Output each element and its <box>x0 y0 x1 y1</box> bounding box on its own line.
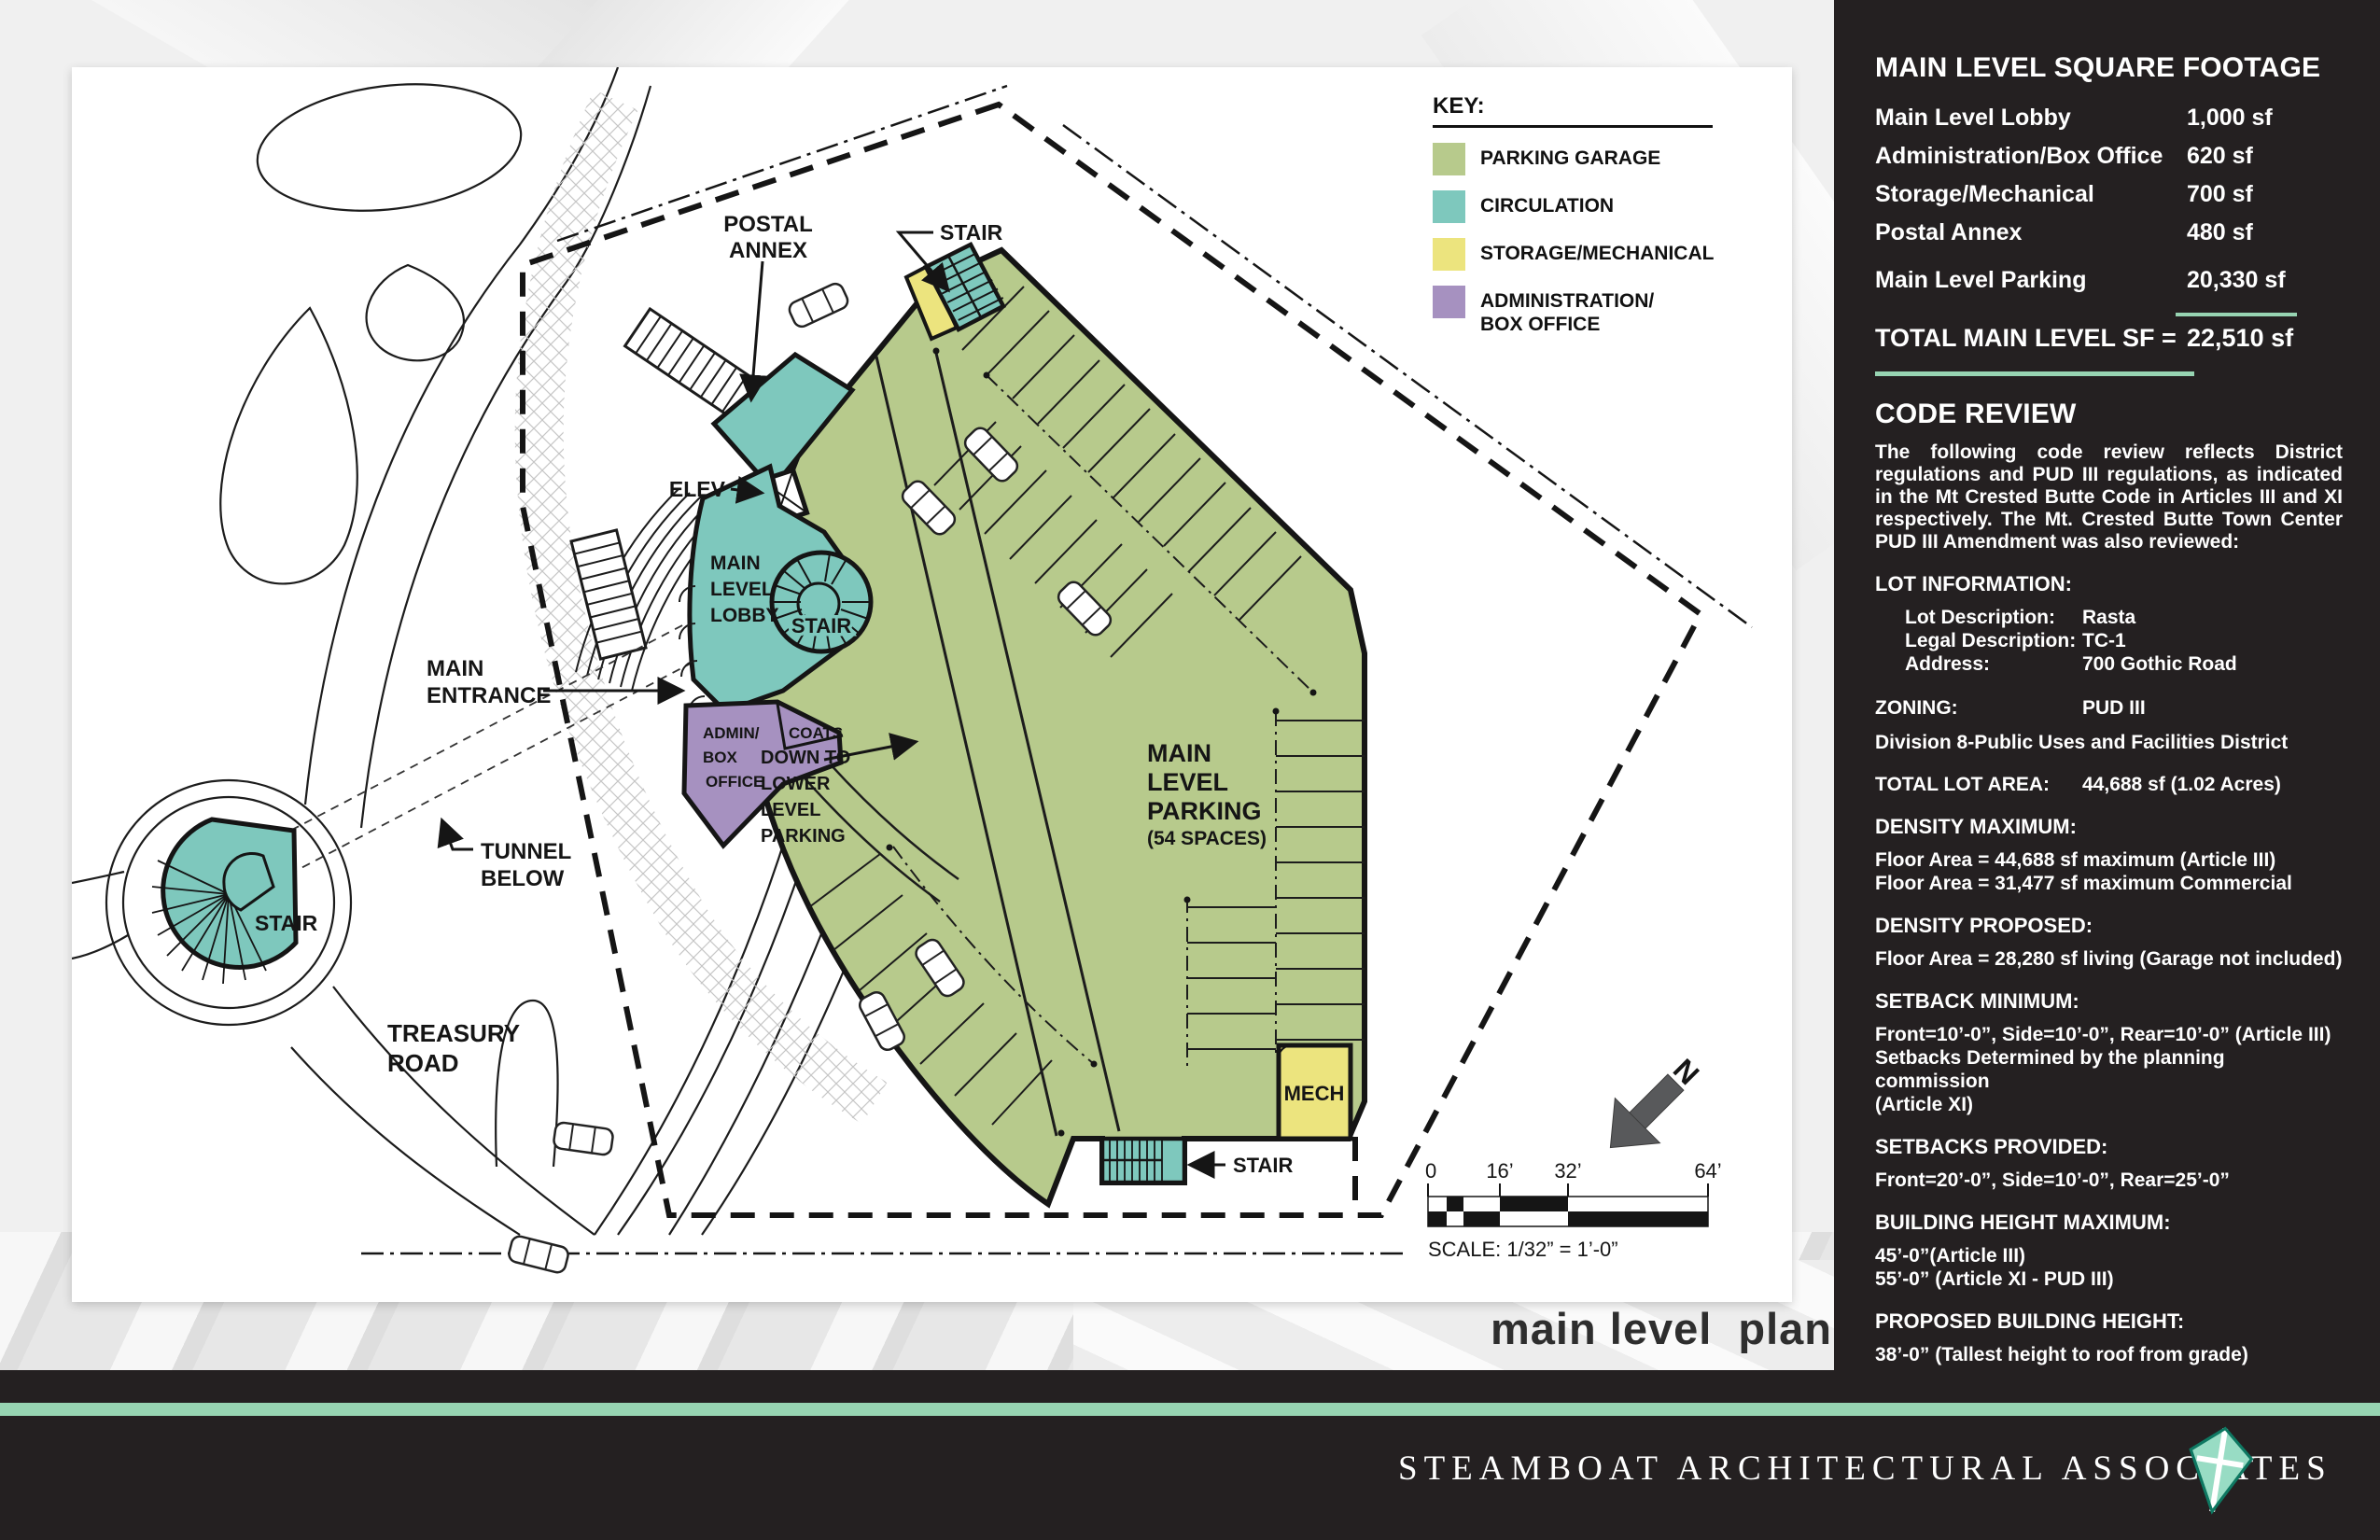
key-item-label: PARKING GARAGE <box>1480 143 1660 170</box>
section-line: 45’-0”(Article III) <box>1875 1244 2343 1267</box>
section-line: Front=20’-0”, Side=10’-0”, Rear=25’-0” <box>1875 1169 2343 1192</box>
circulation-swatch <box>1433 190 1465 223</box>
label-down-to: PARKING <box>761 826 846 847</box>
label-elev: ELEV <box>669 477 726 501</box>
scale-tick: 0 <box>1425 1159 1436 1183</box>
label-main-parking: MAIN <box>1147 739 1211 767</box>
label-main-entrance: MAIN <box>427 656 483 681</box>
sqft-total-row: TOTAL MAIN LEVEL SF = 22,510 sf <box>1875 324 2343 353</box>
label-admin: OFFICE <box>706 773 763 791</box>
section-heading: PROPOSED BUILDING HEIGHT: <box>1875 1309 2343 1334</box>
sqft-row: Postal Annex 480 sf <box>1875 214 2343 252</box>
logo-diamond-icon <box>2182 1424 2255 1518</box>
label-postal-annex: ANNEX <box>729 238 807 263</box>
lot-area-row: TOTAL LOT AREA: 44,688 sf (1.02 Acres) <box>1875 773 2343 796</box>
admin-swatch <box>1433 286 1465 318</box>
lot-info-row: Lot Description: Rasta <box>1875 606 2343 629</box>
label-stair-site: STAIR <box>255 911 318 935</box>
label-lobby: LEVEL <box>710 579 774 600</box>
zoning-note: Division 8-Public Uses and Facilities Di… <box>1875 731 2343 754</box>
key-title: KEY: <box>1433 93 1713 128</box>
label-main-parking: PARKING <box>1147 797 1262 825</box>
scale-tick: 32’ <box>1554 1159 1581 1183</box>
lot-info-row: Address: 700 Gothic Road <box>1875 652 2343 676</box>
label-mech: MECH <box>1284 1082 1345 1105</box>
plan-sheet: POSTAL ANNEX STAIR ELEV MAIN LEVEL LOBBY… <box>72 67 1792 1302</box>
code-review-title: CODE REVIEW <box>1875 399 2343 430</box>
label-tunnel-below: BELOW <box>481 866 565 891</box>
sqft-row: Main Level Parking 20,330 sf <box>1875 261 2343 300</box>
section-line: (Article XI) <box>1875 1093 2343 1116</box>
site-stair <box>152 819 296 984</box>
label-main-parking: LEVEL <box>1147 768 1228 796</box>
plan-caption: main level plan <box>1491 1303 1832 1354</box>
label-stair-bottom: STAIR <box>1233 1154 1293 1177</box>
label-postal-annex: POSTAL <box>723 212 813 237</box>
key-item-label: STORAGE/MECHANICAL <box>1480 238 1714 265</box>
key-item-label: ADMINISTRATION/ BOX OFFICE <box>1480 286 1654 336</box>
scale-label: SCALE: 1/32” = 1’-0” <box>1428 1238 1618 1261</box>
section-heading: DENSITY MAXIMUM: <box>1875 815 2343 839</box>
label-stair-spiral: STAIR <box>791 614 851 637</box>
north-arrow-icon: N <box>1588 1038 1720 1170</box>
scale-tick: 16’ <box>1486 1159 1513 1183</box>
section-heading: DENSITY PROPOSED: <box>1875 914 2343 938</box>
section-line: 55’-0” (Article XI - PUD III) <box>1875 1267 2343 1291</box>
car-icon <box>508 1235 570 1274</box>
label-treasury-road: ROAD <box>387 1049 459 1077</box>
section-heading: SETBACK MINIMUM: <box>1875 989 2343 1014</box>
key-legend: KEY: PARKING GARAGE CIRCULATION STORAGE/… <box>1433 93 1741 336</box>
section-line: Front=10’-0”, Side=10’-0”, Rear=10’-0” (… <box>1875 1023 2343 1046</box>
info-sidebar: MAIN LEVEL SQUARE FOOTAGE Main Level Lob… <box>1834 0 2380 1540</box>
key-item-label: CIRCULATION <box>1480 190 1614 217</box>
label-treasury-road: TREASURY <box>387 1019 520 1047</box>
section-line: Floor Area = 28,280 sf living (Garage no… <box>1875 947 2343 971</box>
scale-bar: 0 16’ 32’ 64’ SCALE: 1/32” = 1’-0” <box>1425 1159 1722 1261</box>
label-coats: COATS <box>789 724 843 742</box>
key-item-circulation: CIRCULATION <box>1433 190 1741 223</box>
label-down-to: LOWER <box>761 774 831 794</box>
zoning-row: ZONING: PUD III <box>1875 696 2343 720</box>
label-down-to: DOWN TO <box>761 748 850 768</box>
key-item-parking: PARKING GARAGE <box>1433 143 1741 175</box>
presentation-board: POSTAL ANNEX STAIR ELEV MAIN LEVEL LOBBY… <box>0 0 2380 1540</box>
code-review-intro: The following code review reflects Distr… <box>1875 441 2343 553</box>
key-item-admin: ADMINISTRATION/ BOX OFFICE <box>1433 286 1741 336</box>
mint-separator <box>2176 313 2297 316</box>
footer: STEAMBOAT ARCHITECTURAL ASSOCIATES <box>0 1370 2380 1540</box>
section-line: Floor Area = 31,477 sf maximum Commercia… <box>1875 872 2343 895</box>
car-icon <box>553 1122 613 1155</box>
sqft-row: Main Level Lobby 1,000 sf <box>1875 99 2343 137</box>
label-main-parking: (54 SPACES) <box>1147 828 1267 849</box>
scale-tick: 64’ <box>1694 1159 1721 1183</box>
label-tunnel-below: TUNNEL <box>481 839 571 864</box>
car-icon <box>787 281 850 329</box>
mint-separator <box>1875 371 2194 376</box>
sqft-title: MAIN LEVEL SQUARE FOOTAGE <box>1875 52 2343 84</box>
section-line: Setbacks Determined by the planning comm… <box>1875 1046 2343 1093</box>
section-heading: BUILDING HEIGHT MAXIMUM: <box>1875 1211 2343 1235</box>
bottom-stair-room <box>1102 1139 1184 1183</box>
label-lobby: LOBBY <box>710 605 779 626</box>
lot-information-heading: LOT INFORMATION: <box>1875 572 2343 596</box>
mint-stripe <box>0 1403 2380 1416</box>
label-stair-top: STAIR <box>940 220 1003 245</box>
sqft-row: Administration/Box Office 620 sf <box>1875 137 2343 175</box>
label-down-to: LEVEL <box>761 800 820 820</box>
storage-swatch <box>1433 238 1465 271</box>
section-heading: SETBACKS PROVIDED: <box>1875 1135 2343 1159</box>
parking-garage-swatch <box>1433 143 1465 175</box>
label-lobby: MAIN <box>710 553 761 574</box>
section-line: 38’-0” (Tallest height to roof from grad… <box>1875 1343 2343 1366</box>
label-main-entrance: ENTRANCE <box>427 683 551 708</box>
key-item-storage: STORAGE/MECHANICAL <box>1433 238 1741 271</box>
lot-info-row: Legal Description: TC-1 <box>1875 629 2343 652</box>
sqft-row: Storage/Mechanical 700 sf <box>1875 175 2343 214</box>
section-line: Floor Area = 44,688 sf maximum (Article … <box>1875 848 2343 872</box>
label-admin: ADMIN/ <box>703 724 760 742</box>
label-admin: BOX <box>703 749 738 766</box>
